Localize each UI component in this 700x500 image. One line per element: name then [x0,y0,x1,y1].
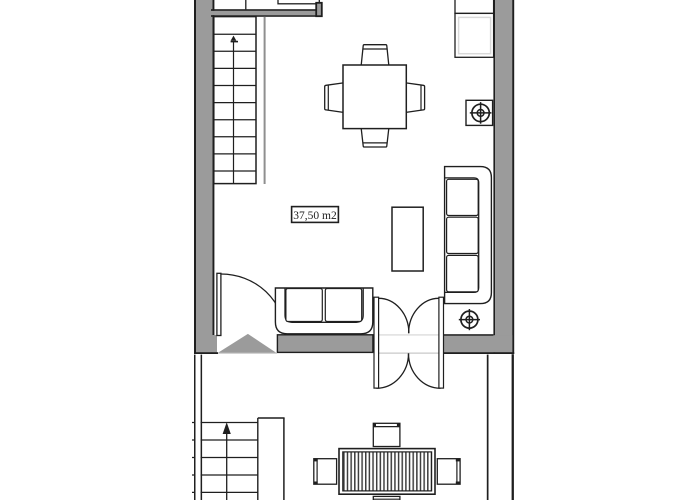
svg-text:37,50 m2: 37,50 m2 [293,210,337,222]
